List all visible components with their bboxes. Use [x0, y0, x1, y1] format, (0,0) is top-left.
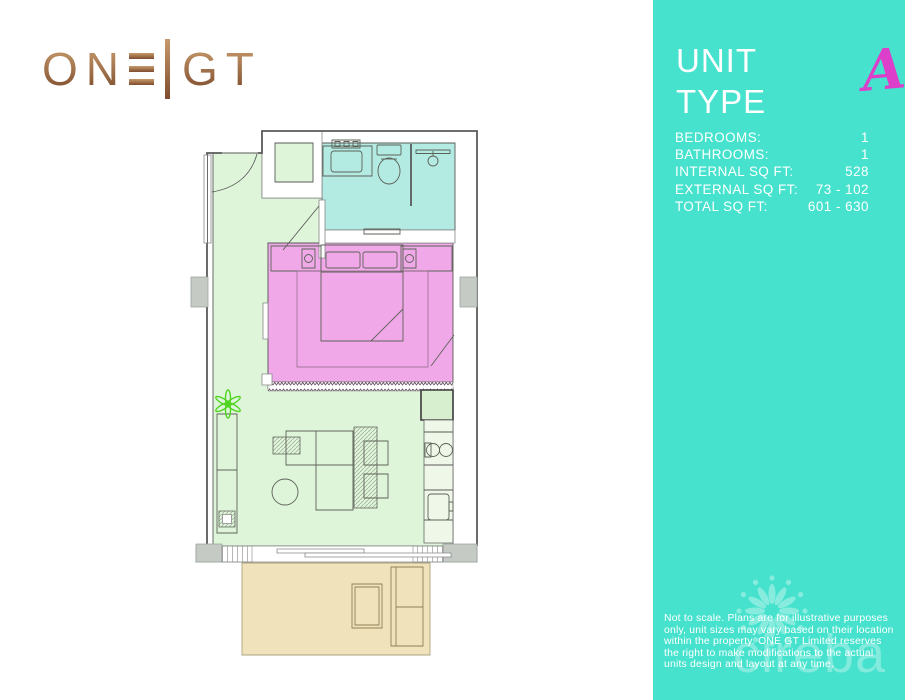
door-track [263, 303, 268, 339]
logo-text-gt: GT [182, 46, 262, 92]
detail-label: EXTERNAL SQ FT: [675, 181, 798, 198]
floor-plan [185, 118, 485, 663]
closet [262, 131, 322, 198]
detail-row-total-sqft: TOTAL SQ FT: 601 - 630 [675, 198, 869, 215]
detail-row-external-sqft: EXTERNAL SQ FT: 73 - 102 [675, 181, 869, 198]
kitchen [421, 390, 453, 543]
side-table [273, 437, 300, 454]
detail-label: BEDROOMS: [675, 129, 761, 146]
window-left [204, 155, 211, 243]
detail-row-bedrooms: BEDROOMS: 1 [675, 129, 869, 146]
unit-title-text: UNIT TYPE [676, 40, 855, 123]
bedroom [268, 243, 453, 382]
unit-letter: A [859, 40, 905, 100]
detail-value: 1 [861, 129, 869, 146]
bathroom-bedroom-wall [322, 230, 455, 243]
balcony [242, 563, 430, 655]
unit-info-sidebar: UNIT TYPE A BEDROOMS: 1 BATHROOMS: 1 INT… [653, 0, 905, 700]
detail-label: BATHROOMS: [675, 146, 769, 163]
detail-value: 73 - 102 [816, 181, 869, 198]
logo-e-glyph-icon [129, 53, 154, 85]
flyer-page: ON GT [0, 0, 905, 700]
one-gt-logo: ON GT [42, 40, 262, 98]
detail-value: 601 - 630 [808, 198, 869, 215]
logo-divider-icon [165, 39, 170, 99]
detail-label: INTERNAL SQ FT: [675, 163, 794, 180]
pillar-left [191, 277, 208, 307]
disclaimer-text: Not to scale. Plans are for illustrative… [664, 613, 898, 671]
kitchen-counter [424, 420, 453, 543]
detail-value: 528 [845, 163, 869, 180]
detail-row-bathrooms: BATHROOMS: 1 [675, 146, 869, 163]
unit-details-table: BEDROOMS: 1 BATHROOMS: 1 INTERNAL SQ FT:… [675, 129, 869, 215]
detail-value: 1 [861, 146, 869, 163]
detail-row-internal-sqft: INTERNAL SQ FT: 528 [675, 163, 869, 180]
pillar-right [460, 277, 477, 307]
fridge [421, 390, 453, 420]
logo-text-on: ON [42, 46, 127, 92]
detail-label: TOTAL SQ FT: [675, 198, 768, 215]
unit-title: UNIT TYPE A [676, 40, 905, 123]
